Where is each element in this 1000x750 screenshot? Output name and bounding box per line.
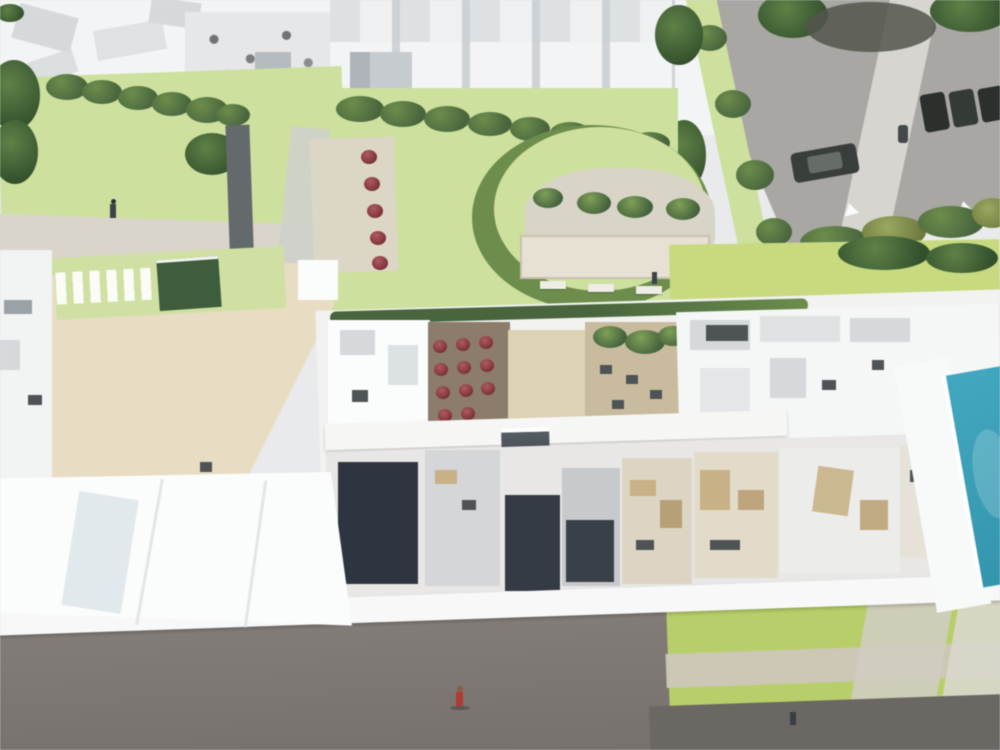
center-hedge-row [380,101,426,127]
yellow-roof-umbrella [545,372,560,386]
roof-furniture [650,390,662,399]
garden-bench [540,281,566,289]
person-far [790,712,796,725]
storefront-awning [5,616,47,628]
facade-sign-right [560,426,634,441]
gym-equipment [738,490,764,510]
yellow-roof-umbrella [546,394,561,408]
garden-shrub [533,188,563,208]
rooftop-unit [340,330,375,355]
rooftop-unit [760,316,840,342]
room-furniture [435,470,457,484]
right-lawn-tree-overhang [838,236,930,270]
roof-furniture [626,375,638,384]
person-at-bench [652,272,657,284]
rooftop-vent [352,390,368,402]
yellow-roof-umbrella [517,352,532,366]
garden-shrub [617,196,653,218]
garden-shrub [666,198,700,220]
yellow-roof-umbrella [528,334,543,348]
far-left-structure [28,395,42,405]
yellow-umbrella [331,205,345,218]
shade-canopy [156,256,221,311]
room-divider [374,465,380,581]
lounger-row [55,267,159,304]
red-umbrella [372,256,388,270]
yellow-roof-umbrella [519,396,534,410]
red-roof-umbrella [481,382,495,395]
roof-furniture [612,400,624,409]
median-bush [715,90,751,118]
red-roof-umbrella [459,384,473,397]
red-roof-umbrella [461,407,475,420]
red-umbrella [364,177,380,191]
red-roof-umbrella [436,386,450,399]
yellow-roof-umbrella [544,350,559,364]
red-roof-umbrella [433,340,447,353]
facade-sign-left [452,423,492,437]
sign-text-marks [452,424,480,425]
red-roof-umbrella [456,338,470,351]
red-umbrella [370,231,386,245]
yellow-umbrella [328,180,342,193]
garden-bench [636,286,662,294]
roof-tree [593,326,627,348]
rooftop-dark-object [706,325,748,341]
person-red-shirt [456,692,463,706]
storefront-awning [55,620,101,632]
yellow-umbrella [334,231,348,244]
red-umbrella [367,204,383,218]
far-left-structure [0,340,20,370]
center-hedge-row [424,106,470,132]
room-furniture-dark [710,540,740,550]
rooftop-unit [850,318,910,342]
yellow-umbrella [325,155,339,168]
parked-car [919,91,950,133]
gym-equipment [700,470,730,510]
far-left-building [0,250,52,490]
rooftop-unit [770,358,806,398]
red-roof-umbrella [434,363,448,376]
pool-water-highlight [966,426,1000,522]
tree-shadow-canopy [806,2,936,52]
storefront-awning [620,595,660,605]
terrace-furniture [200,462,212,472]
rooftop-vent [872,360,884,370]
yellow-roof-umbrella [518,374,533,388]
left-lawn-hedge [46,74,88,100]
garden-shrub [577,192,611,214]
room-dark-floor [566,520,614,582]
room-furniture [630,480,656,496]
parked-car [948,88,979,128]
pedestrian-head [111,199,116,204]
pedestrian-on-path [110,204,116,218]
storefront-awning [105,624,145,636]
front-building-roof [0,472,352,632]
roof-furniture [600,365,612,374]
storefront-awning [205,629,255,641]
median-bush [756,218,792,246]
left-lawn-hedge [216,104,250,126]
red-roof-umbrella [479,336,493,349]
red-roof-umbrella [457,361,471,374]
rooftop-vent [822,380,836,390]
gym-equipment [860,500,888,530]
red-umbrella [361,150,377,164]
cutaway-lobby-dark [505,495,560,591]
rooftop-unit [388,345,418,385]
center-hedge-row [336,96,384,122]
terrace-pergola [298,260,338,300]
center-hedge-row [468,112,512,136]
room-furniture-dark [636,540,654,550]
median-bush [736,160,774,190]
parked-car [977,85,1000,123]
right-lawn-tree-overhang [926,243,998,273]
gym-equipment [812,466,854,517]
parking-tree [655,5,703,65]
room-furniture [660,500,682,528]
car-roof [807,151,843,174]
person-red-head [457,686,463,692]
pedestrian-in-lot [898,125,908,143]
person-red-shadow [450,706,470,710]
yellow-umbrella [337,255,351,268]
left-lawn-hedge [82,80,122,104]
red-roof-umbrella [480,359,494,372]
scene [0,0,1000,750]
room-furniture-dark [462,500,476,510]
far-left-structure [4,300,32,314]
garden-bench [588,284,614,292]
umbrella-terrace-strip [310,137,399,274]
